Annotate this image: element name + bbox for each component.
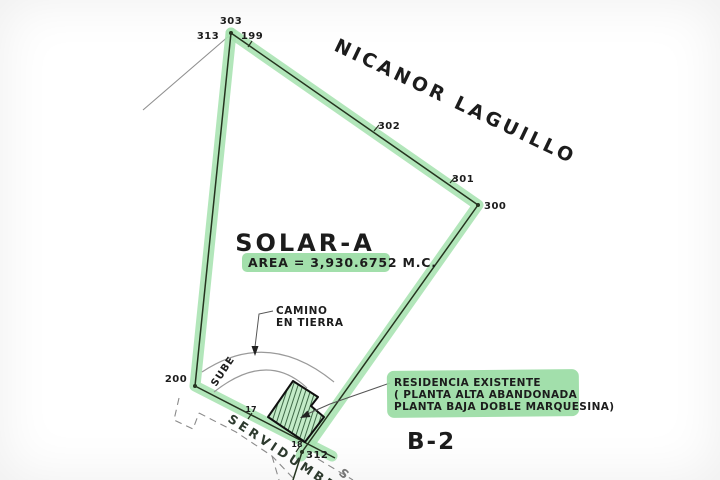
point-label-302: 302	[378, 121, 400, 132]
point-label-313: 313	[197, 31, 219, 42]
road-label-line1: CAMINO	[276, 305, 328, 317]
point-label-300: 300	[484, 201, 506, 212]
point-label-200: 200	[165, 374, 187, 385]
point-label-301: 301	[452, 174, 474, 185]
road-direction-label: SUBE	[209, 355, 237, 389]
residence-note-line3: PLANTA BAJA DOBLE MARQUESINA)	[394, 401, 614, 413]
survey-plot-plan: NICANOR LAGUILLO SOLAR-A AREA = 3,930.67…	[0, 0, 720, 480]
residence-note-line2: ( PLANTA ALTA ABANDONADA	[394, 389, 578, 401]
street-name-label: NICANOR LAGUILLO	[331, 35, 580, 169]
point-label-199: 199	[241, 31, 263, 42]
parcel-title: SOLAR-A	[235, 229, 375, 257]
tick-label-18: 18	[291, 440, 303, 449]
tick-label-17: 17	[245, 405, 256, 414]
point-label-303: 303	[220, 16, 242, 27]
road-label-line2: EN TIERRA	[276, 317, 344, 329]
easement-dashed-jog	[174, 398, 199, 429]
parcel-area-label: AREA = 3,930.6752 M.C.	[248, 255, 437, 270]
residence-note-line1: RESIDENCIA EXISTENTE	[394, 377, 541, 389]
survey-tie-line	[143, 35, 230, 110]
adjacent-lot-label: B-2	[407, 429, 456, 455]
site-plan-drawing: NICANOR LAGUILLO SOLAR-A AREA = 3,930.67…	[0, 0, 720, 480]
point-label-312: 312	[306, 450, 328, 461]
road-leader-line	[252, 311, 274, 356]
